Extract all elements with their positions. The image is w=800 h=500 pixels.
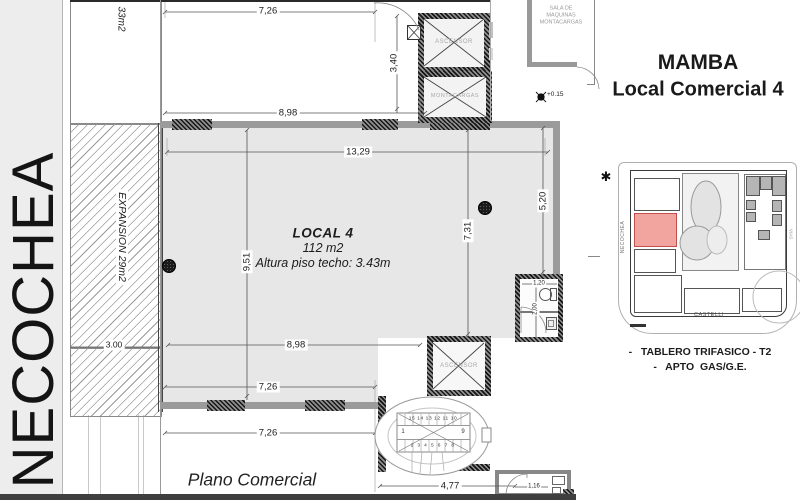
stair-wall (378, 396, 386, 472)
dim-1329: 13,29 (344, 147, 372, 158)
pavement-joint (88, 415, 89, 494)
floor-plan-sheet: NECOCHEA 33m2 EXPANSION 29m2 7,26 8,98 1… (0, 0, 800, 500)
keyplan-unit (742, 288, 782, 312)
keyplan-unit (634, 249, 676, 273)
toilet-tank (550, 288, 557, 301)
expansion-upper-label: 33m2 (116, 6, 127, 31)
wall-pilaster (305, 400, 345, 411)
dim-898-top: 8,98 (277, 108, 300, 119)
level-marker-text: +0.15 (547, 91, 563, 98)
dim-340: 3,40 (389, 52, 400, 75)
dim-726-low: 7,26 (257, 428, 280, 439)
note-apto-gas: - APTO GAS/G.E. (653, 361, 746, 373)
machine-room-label-1: SALA DE (550, 6, 573, 13)
north-marker-icon: ✱ (601, 169, 612, 185)
keyplan-core (746, 200, 756, 210)
sink-basin (548, 320, 554, 327)
top-wall (160, 121, 560, 128)
street-curb (0, 494, 576, 500)
freight-elevator-label: MONTACARGAS (431, 93, 479, 99)
dim-116: 1,16 (527, 484, 541, 491)
pavement-joint (100, 415, 101, 494)
wall-pilaster (172, 119, 212, 130)
pavement-joint (143, 415, 144, 494)
panel-title-line2: Local Comercial 4 (612, 79, 783, 102)
keyplan-highlighted-unit (634, 213, 677, 247)
dim-300: 3.00 (104, 340, 125, 351)
note-tablero: - TABLERO TRIFASICO - T2 (629, 346, 772, 358)
sheet-caption: Plano Comercial (188, 470, 316, 491)
dim-951: 9,51 (242, 251, 253, 274)
keyplan-courtyard (682, 173, 739, 271)
site-boundary-tick (587, 84, 595, 85)
plan-cut-edge (70, 0, 490, 2)
keyplan-core (760, 176, 772, 190)
dim-477: 4,77 (439, 481, 462, 492)
keyplan-core (772, 200, 782, 212)
machine-room-label-3: MONTACARGAS (540, 20, 583, 27)
machine-room-bottom-wall (527, 62, 577, 67)
expansion-label: EXPANSION 29m2 (116, 189, 128, 285)
stair-numbers-upper: 15 14 13 12 11 10 (409, 417, 458, 422)
dim-726-mid: 7,26 (257, 382, 280, 393)
panel-title-line1: MAMBA (658, 51, 738, 75)
machine-room-left-wall (527, 0, 532, 67)
local-name: LOCAL 4 (292, 226, 353, 241)
keyplan-core (772, 214, 782, 226)
core-edge-line (490, 0, 491, 121)
expansion-lower-area (70, 347, 162, 417)
stair-numbers-lower: 2 3 4 5 6 7 8 (411, 444, 456, 449)
keyplan-core (758, 230, 770, 240)
dim-120: 1,20 (532, 281, 546, 288)
dim-898-bottom: 8,98 (285, 340, 308, 351)
elevator-bottom-label: ASCENSOR (440, 363, 478, 369)
keyplan-core (746, 176, 760, 196)
structural-column (162, 259, 176, 273)
street-name-label: NECOCHEA (3, 140, 65, 500)
level-marker-icon (536, 92, 546, 102)
wall-pilaster (207, 400, 245, 411)
elevator-top-label: ASCENSOR (435, 39, 473, 45)
dim-200: 2,00 (533, 302, 540, 316)
pavement-joint (138, 415, 139, 494)
dim-731: 7,31 (463, 220, 474, 243)
keyplan-street-right-label: VIAS (789, 229, 794, 239)
vestibule-fixture (552, 487, 561, 494)
keyplan-street-bottom-label: CASTELLI (694, 312, 724, 318)
keyplan-unit (634, 275, 682, 313)
site-boundary-mark (588, 256, 600, 257)
dim-520: 5,20 (538, 190, 549, 213)
keyplan-core (772, 176, 786, 196)
wall-pilaster (362, 119, 398, 130)
site-boundary-line (594, 0, 595, 84)
under-stair-wall (428, 464, 490, 471)
local-interior (163, 127, 553, 338)
keyplan-street-left-label: NECOCHEA (620, 221, 626, 253)
dim-726-top: 7,26 (257, 6, 280, 17)
local-height: Altura piso techo: 3.43m (256, 256, 391, 270)
stair-number-first: 1 (401, 429, 404, 435)
keyplan-scale-mark (630, 324, 646, 327)
small-duct (407, 25, 421, 40)
keyplan-core (746, 212, 756, 222)
keyplan-unit (634, 178, 680, 211)
bottom-wall (160, 402, 380, 409)
vestibule-fixture (552, 476, 565, 485)
local-area: 112 m2 (303, 241, 344, 255)
machine-room-label-2: MAQUINAS (546, 13, 575, 20)
stair-number-last: 9 (461, 429, 464, 435)
structural-column (478, 201, 492, 215)
keyplan-unit (684, 288, 740, 314)
